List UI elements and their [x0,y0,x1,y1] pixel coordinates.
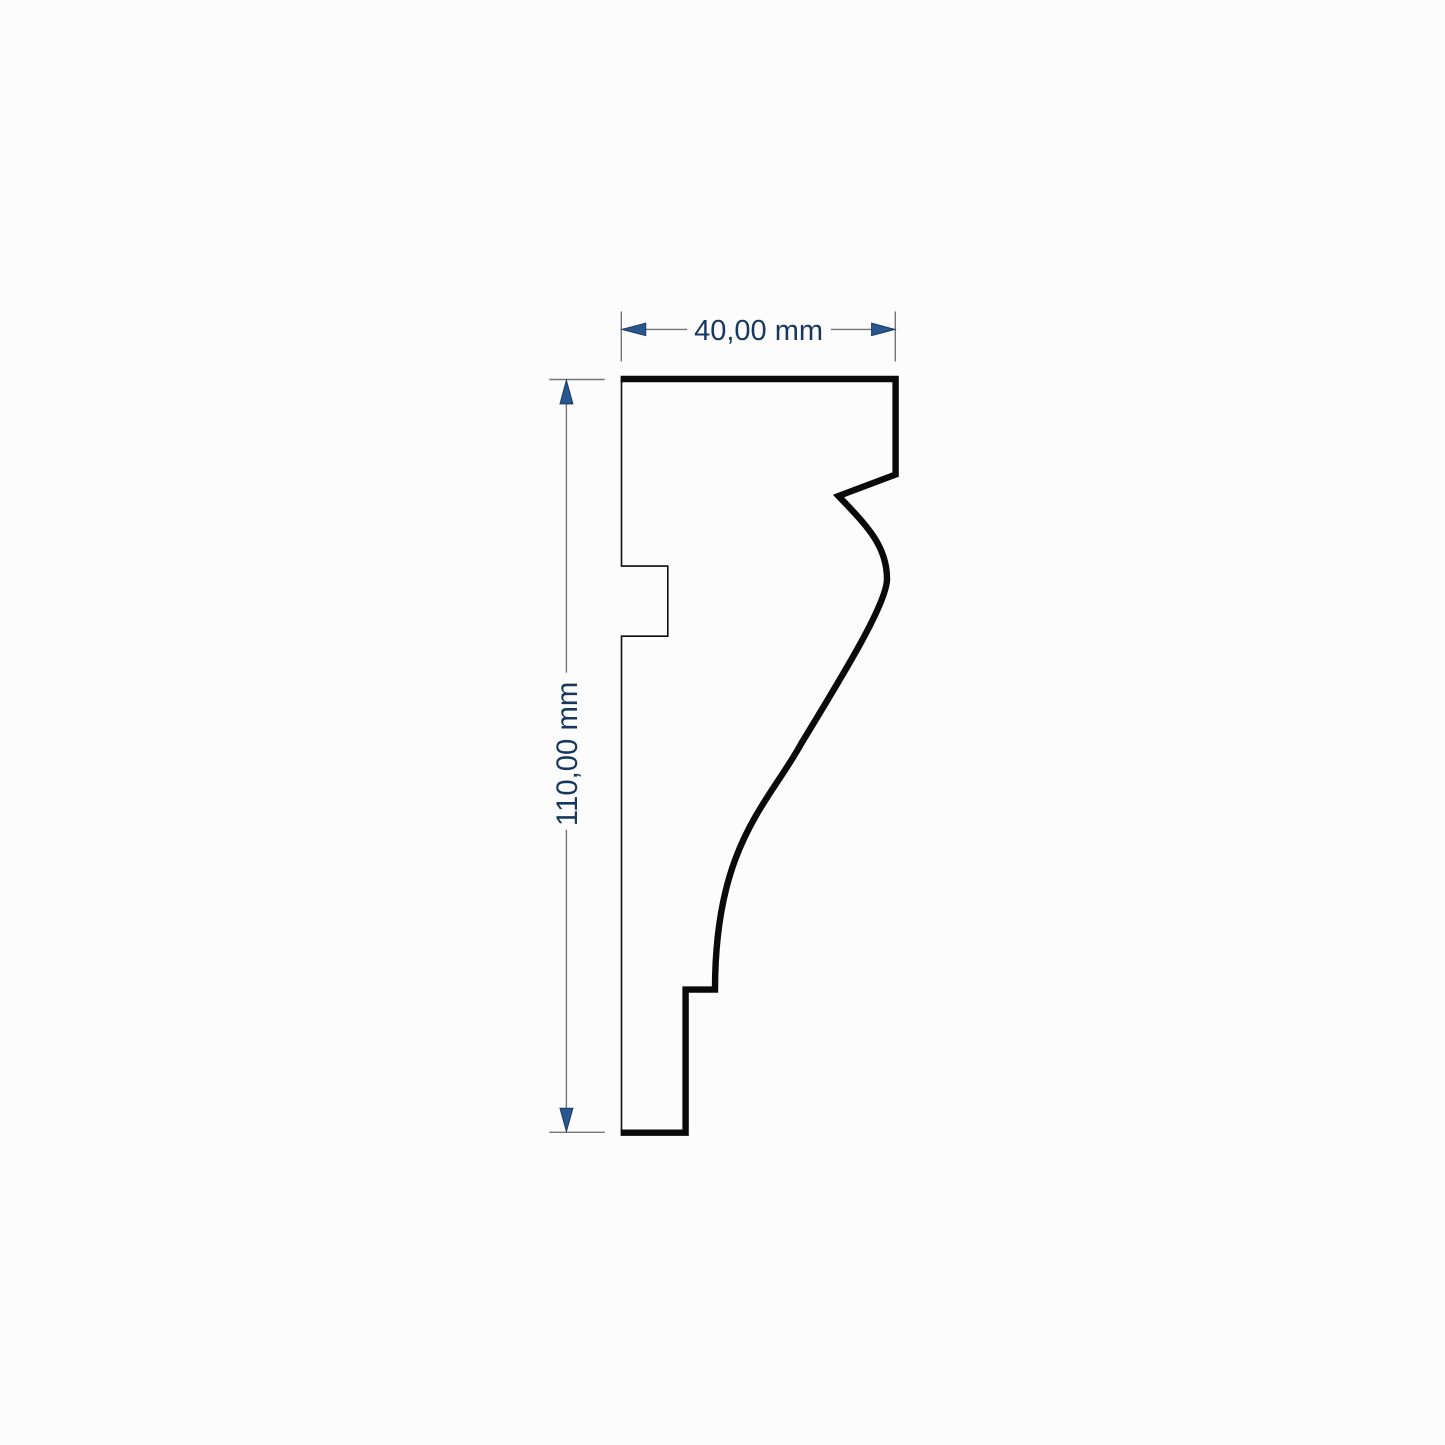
svg-text:110,00 mm: 110,00 mm [551,682,584,826]
svg-text:40,00 mm: 40,00 mm [694,315,823,347]
